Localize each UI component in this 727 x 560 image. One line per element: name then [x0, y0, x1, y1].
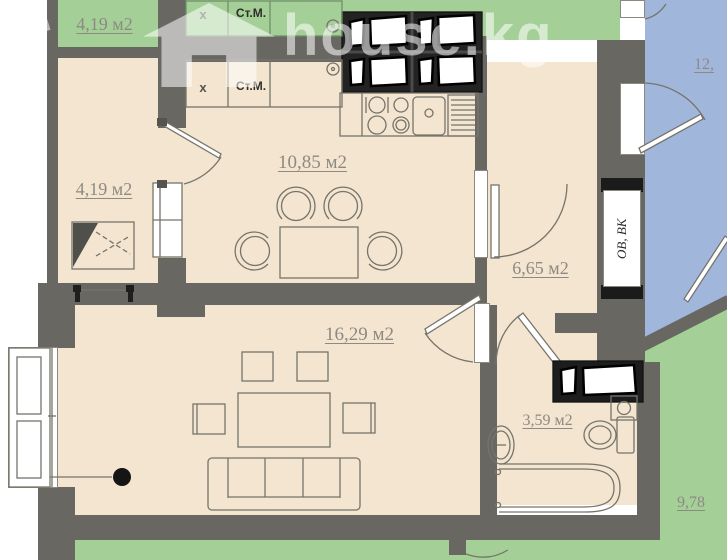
column-dot — [113, 468, 131, 486]
upper-washer-label: Ст.М. — [222, 6, 280, 20]
living-furniture — [40, 352, 375, 510]
vent-blocks-top — [342, 12, 482, 92]
kitchen-sink — [413, 97, 445, 135]
door-leaf — [639, 114, 703, 153]
kitchen-table — [235, 187, 402, 278]
room-label-neighbor-bottom: 9,78 — [660, 494, 722, 512]
door-leaf — [425, 295, 481, 334]
door-leaf — [164, 122, 221, 158]
kitchen-x-mark: х — [190, 80, 216, 95]
room-label-hallway: 6,65 м2 — [498, 258, 583, 279]
room-label-kitchen: 10,85 м2 — [265, 152, 360, 174]
wardrobe — [153, 183, 182, 257]
sofa — [208, 458, 360, 510]
room-label-bathroom: 3,59 м2 — [505, 412, 590, 430]
kitchen-washer-label: Ст.М. — [222, 79, 280, 93]
kitchen-counter — [340, 93, 478, 136]
floor-plan: 4,19 м2 4,19 м2 10,85 м2 6,65 м2 16,29 м… — [0, 0, 727, 560]
door-leaf — [491, 185, 499, 258]
door-leaf — [684, 236, 727, 302]
room-label-upper-storage: 4,19 м2 — [62, 14, 147, 35]
room-label-neighbor-right: 12, — [694, 56, 727, 74]
upper-x-mark: х — [190, 7, 216, 22]
door-leaf — [518, 313, 561, 366]
bathroom-fixtures — [488, 361, 643, 512]
toilet-tank — [617, 417, 634, 453]
room-label-storage: 4,19 м2 — [60, 179, 148, 200]
room-label-living: 16,29 м2 — [312, 324, 407, 346]
shaft-label: ОВ, ВК — [604, 194, 640, 284]
window-left — [9, 348, 56, 487]
living-table — [238, 393, 330, 447]
storage-desk — [72, 222, 134, 302]
